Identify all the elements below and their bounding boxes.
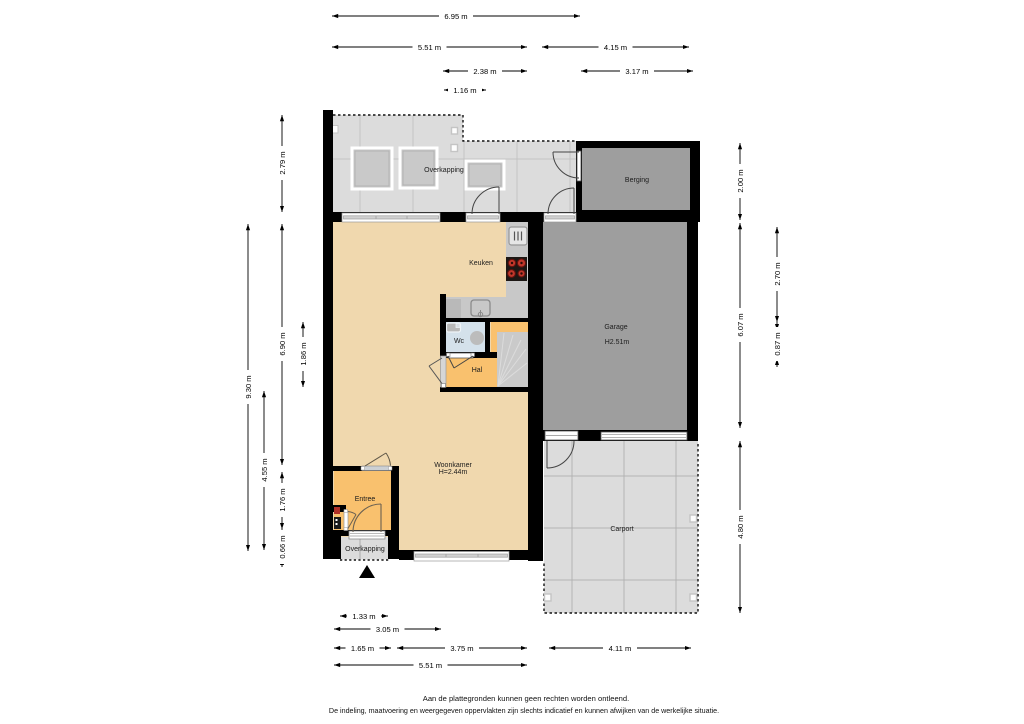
svg-text:Woonkamer: Woonkamer xyxy=(434,462,472,469)
svg-text:2.79 m: 2.79 m xyxy=(278,151,287,174)
svg-text:H=2.44m: H=2.44m xyxy=(439,469,468,476)
svg-text:2.38 m: 2.38 m xyxy=(473,67,496,76)
svg-text:6.90 m: 6.90 m xyxy=(278,332,287,355)
svg-text:Berging: Berging xyxy=(625,177,649,184)
svg-text:6.95 m: 6.95 m xyxy=(444,12,467,21)
svg-text:De indeling, maatvoering en we: De indeling, maatvoering en weergegeven … xyxy=(329,707,719,715)
svg-text:Overkapping: Overkapping xyxy=(424,167,464,174)
svg-text:0.66 m: 0.66 m xyxy=(278,535,287,558)
svg-text:3.17 m: 3.17 m xyxy=(625,67,648,76)
svg-text:9.30 m: 9.30 m xyxy=(244,375,253,398)
svg-text:1.86 m: 1.86 m xyxy=(299,342,308,365)
svg-text:4.11 m: 4.11 m xyxy=(609,644,632,653)
svg-text:5.51 m: 5.51 m xyxy=(418,43,441,52)
svg-text:0.87 m: 0.87 m xyxy=(773,332,782,355)
svg-text:Wc: Wc xyxy=(454,338,465,345)
svg-text:4.15 m: 4.15 m xyxy=(604,43,627,52)
svg-text:4.80 m: 4.80 m xyxy=(736,515,745,538)
svg-text:2.70 m: 2.70 m xyxy=(773,262,782,285)
svg-text:2.00 m: 2.00 m xyxy=(736,169,745,192)
svg-text:Entree: Entree xyxy=(355,496,376,503)
svg-text:Hal: Hal xyxy=(472,367,483,374)
svg-text:Carport: Carport xyxy=(610,526,633,533)
svg-text:3.75 m: 3.75 m xyxy=(450,644,473,653)
svg-text:1.76 m: 1.76 m xyxy=(278,488,287,511)
svg-text:Overkapping: Overkapping xyxy=(345,546,385,553)
svg-text:H2.51m: H2.51m xyxy=(605,339,630,346)
svg-text:Keuken: Keuken xyxy=(469,260,493,267)
svg-text:1.65 m: 1.65 m xyxy=(351,644,374,653)
svg-text:4.55 m: 4.55 m xyxy=(260,458,269,481)
svg-text:6.07 m: 6.07 m xyxy=(736,313,745,336)
svg-text:1.16 m: 1.16 m xyxy=(453,86,476,95)
svg-text:1.33 m: 1.33 m xyxy=(352,612,375,621)
svg-text:5.51 m: 5.51 m xyxy=(419,661,442,670)
svg-text:Aan de plattegronden kunnen ge: Aan de plattegronden kunnen geen rechten… xyxy=(423,694,629,703)
svg-text:3.05 m: 3.05 m xyxy=(376,625,399,634)
svg-text:Garage: Garage xyxy=(604,324,627,331)
